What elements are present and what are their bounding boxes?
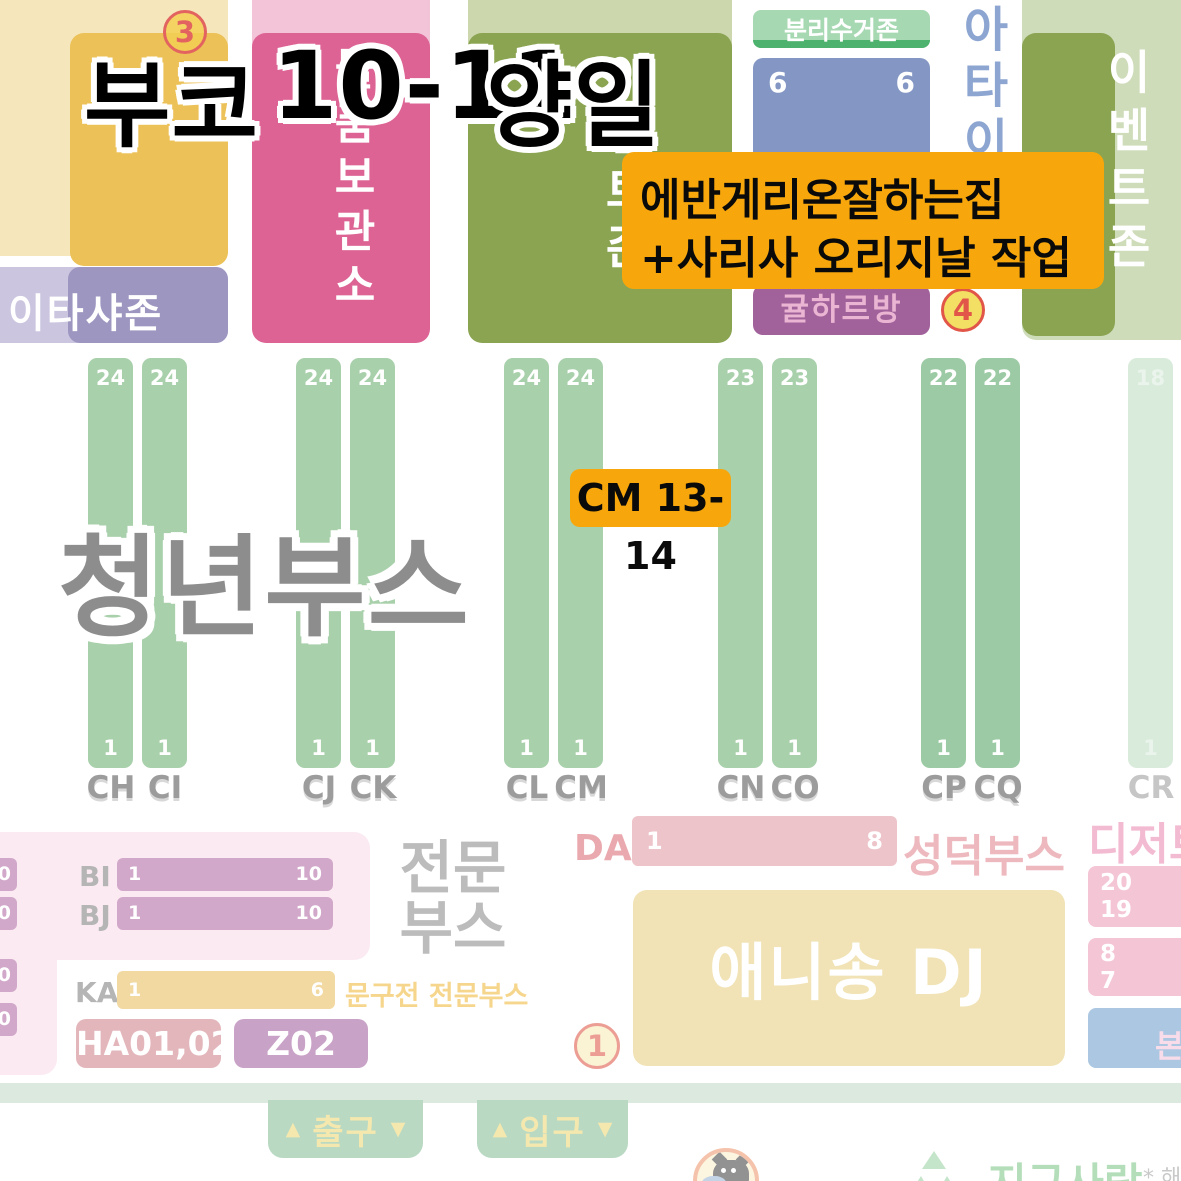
- anisong-dj-label: 애니송 DJ: [633, 922, 1065, 1012]
- blue-zone-right-count: 6: [896, 66, 915, 99]
- callout-line1: 에반게리온잘하는집: [640, 164, 1004, 228]
- column-bottom-number: 1: [558, 736, 603, 760]
- booth-column-CN: 23 1: [718, 358, 763, 768]
- z02-block: Z02: [234, 1019, 368, 1068]
- dessert-block2-bottom: 7: [1100, 968, 1116, 994]
- hq-block: 본부: [1088, 1008, 1181, 1068]
- recycle-icon: [908, 1150, 960, 1181]
- row-label-DA: DA: [574, 828, 632, 869]
- bar-start-number: 1: [128, 971, 141, 1009]
- recycling-zone-label: 분리수거존: [753, 11, 930, 47]
- column-label-CK: CK: [340, 770, 406, 806]
- bar-end-number: 10: [296, 897, 322, 930]
- dessert-block1-bottom: 19: [1100, 897, 1132, 923]
- column-top-number: 18: [1128, 366, 1173, 390]
- booth-column-CR: 18 1: [1128, 358, 1173, 768]
- booth-column-CM: 24 1: [558, 358, 603, 768]
- column-top-number: 23: [718, 366, 763, 390]
- seongdeok-booth-label: 성덕부스: [903, 820, 1065, 884]
- down-triangle-icon: ▼: [598, 1118, 613, 1140]
- cat-eye-icon: [721, 1168, 726, 1173]
- column-bottom-number: 1: [1128, 736, 1173, 760]
- column-bottom-number: 1: [88, 736, 133, 760]
- dessert-block2-top: 8: [1100, 941, 1116, 967]
- number-4-badge: 4: [941, 288, 985, 332]
- footnote-text: * 해당: [1143, 1160, 1181, 1181]
- booth-column-CQ: 22 1: [975, 358, 1020, 768]
- column-top-number: 22: [921, 366, 966, 390]
- row-bar-BI: 1 10: [117, 858, 333, 891]
- column-label-CO: CO: [762, 770, 828, 806]
- booth-column-CL: 24 1: [504, 358, 549, 768]
- title-venue: 부코: [84, 30, 259, 166]
- callout-line2: +사리사 오리지날 작업: [640, 222, 1072, 286]
- edge-bar: 0: [0, 897, 17, 930]
- edge-bar: 0: [0, 959, 17, 992]
- row-label-KA: KA: [75, 976, 118, 1009]
- down-triangle-icon: ▼: [391, 1118, 406, 1140]
- pro-booth-label: 전문 부스: [378, 838, 528, 958]
- bar-start-number: 1: [128, 897, 141, 930]
- badge-4-number: 4: [953, 293, 973, 327]
- z02-block-label: Z02: [234, 1019, 368, 1068]
- booth-column-CP: 22 1: [921, 358, 966, 768]
- column-bottom-number: 1: [718, 736, 763, 760]
- column-bottom-number: 1: [772, 736, 817, 760]
- ha-block-label: HA01,02: [76, 1019, 221, 1068]
- edge-bar: 0: [0, 1003, 17, 1036]
- atai-zone-label: 아타이: [946, 4, 1016, 172]
- cat-mascot-badge: [693, 1148, 759, 1181]
- column-bottom-number: 1: [921, 736, 966, 760]
- gyulharbang-label: 귤하르방: [753, 285, 930, 335]
- hq-block-label: 본부: [1155, 1021, 1181, 1067]
- column-label-CQ: CQ: [965, 770, 1031, 806]
- highlight-callout: 에반게리온잘하는집 +사리사 오리지날 작업: [622, 152, 1104, 289]
- column-top-number: 24: [504, 366, 549, 390]
- column-bottom-number: 1: [296, 736, 341, 760]
- booth-column-CO: 23 1: [772, 358, 817, 768]
- edge-bar-value: 0: [0, 1003, 11, 1036]
- column-label-CR: CR: [1118, 770, 1181, 806]
- column-label-CI: CI: [132, 770, 198, 806]
- column-top-number: 24: [88, 366, 133, 390]
- column-bottom-number: 1: [142, 736, 187, 760]
- row-bar-BJ: 1 10: [117, 897, 333, 930]
- dessert-block-2: 8 7: [1088, 938, 1181, 996]
- cm-13-14-badge: CM 13-14: [570, 469, 731, 527]
- cat-eye-icon: [731, 1168, 736, 1173]
- dessert-block-1: 20 19: [1088, 866, 1181, 927]
- column-top-number: 24: [558, 366, 603, 390]
- exit-gate-label: 출구: [312, 1105, 379, 1154]
- column-label-CM: CM: [548, 770, 614, 806]
- recycling-zone-block: 분리수거존: [753, 10, 930, 48]
- column-top-number: 23: [772, 366, 817, 390]
- pro-booth-label-line2: 부스: [378, 898, 528, 958]
- row-bar-DA: 1 8: [632, 816, 897, 866]
- column-top-number: 22: [975, 366, 1020, 390]
- up-triangle-icon: ▲: [286, 1118, 301, 1140]
- blue-zone-left-count: 6: [768, 66, 787, 99]
- column-bottom-number: 1: [504, 736, 549, 760]
- up-triangle-icon: ▲: [493, 1118, 508, 1140]
- column-bottom-number: 1: [975, 736, 1020, 760]
- itasha-zone-label: 이타샤존: [8, 281, 163, 339]
- bar-end-number: 8: [866, 816, 883, 866]
- edge-bar: 0: [0, 858, 17, 891]
- bar-end-number: 6: [311, 971, 324, 1009]
- column-top-number: 24: [350, 366, 395, 390]
- edge-bar-value: 0: [0, 959, 11, 992]
- column-top-number: 24: [142, 366, 187, 390]
- dessert-zone-label: 디저트: [1088, 808, 1181, 872]
- badge-1-number: 1: [587, 1029, 607, 1063]
- event-floor-map: 3 이타샤존 물품보관소 이벤트존 분리수거존 6 6 귤하르방 아타이 4 이…: [0, 0, 1181, 1181]
- ha-block: HA01,02: [76, 1019, 221, 1068]
- entrance-gate-label: 입구: [519, 1105, 586, 1154]
- youth-booth-label: 청년부스: [58, 498, 471, 658]
- edge-bar-value: 0: [0, 858, 11, 891]
- row-label-BI: BI: [79, 860, 111, 893]
- column-top-number: 24: [296, 366, 341, 390]
- bar-end-number: 10: [296, 858, 322, 891]
- row-bar-KA: 1 6: [117, 971, 335, 1009]
- gyulharbang-block: 귤하르방: [753, 285, 930, 335]
- entrance-gate: ▲ 입구 ▼: [477, 1100, 628, 1158]
- bar-start-number: 1: [646, 816, 663, 866]
- bar-start-number: 1: [128, 858, 141, 891]
- edge-bar-value: 0: [0, 897, 11, 930]
- title-days: 양일: [486, 30, 661, 166]
- anisong-dj-block: 애니송 DJ: [633, 890, 1065, 1066]
- row-label-BJ: BJ: [79, 899, 111, 932]
- pro-booth-label-line1: 전문: [378, 838, 528, 898]
- column-bottom-number: 1: [350, 736, 395, 760]
- earth-love-label: 지구사랑: [988, 1150, 1143, 1181]
- stationery-booth-label: 문구전 전문부스: [345, 974, 528, 1013]
- exit-gate: ▲ 출구 ▼: [268, 1100, 423, 1158]
- number-1-badge: 1: [574, 1023, 620, 1069]
- dessert-block1-top: 20: [1100, 870, 1132, 896]
